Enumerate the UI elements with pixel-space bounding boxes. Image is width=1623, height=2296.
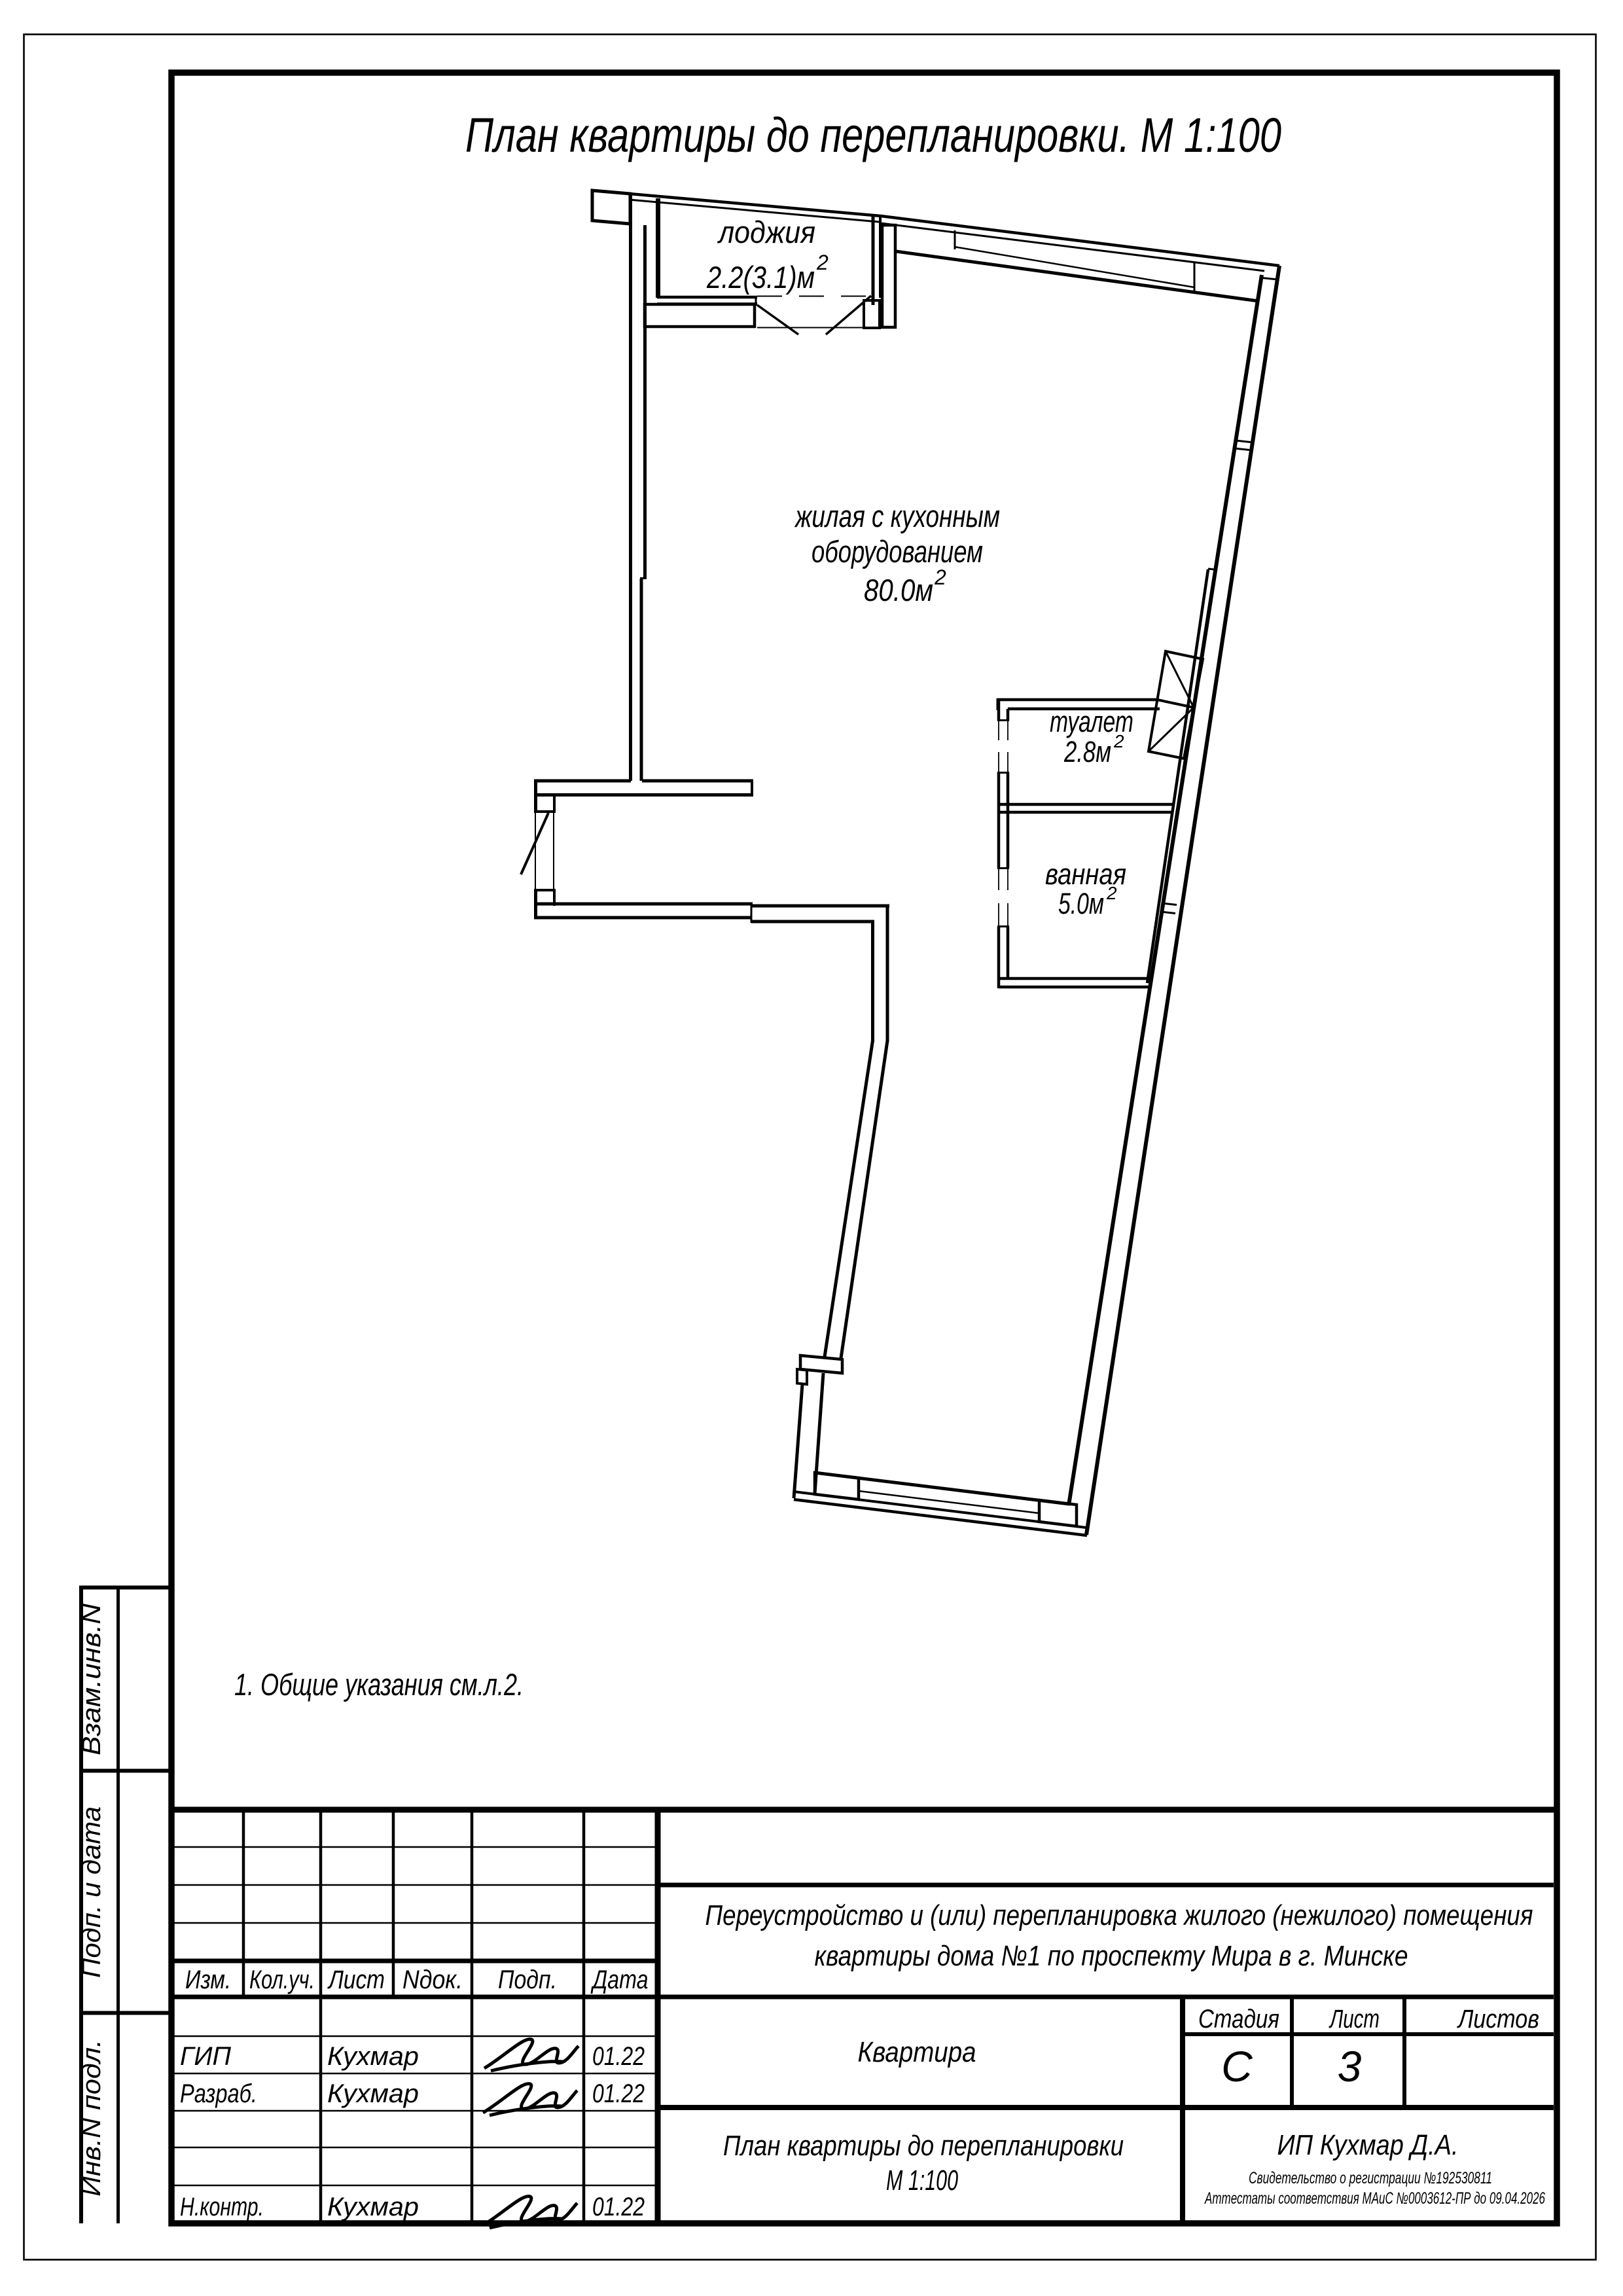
svg-text:Дата: Дата — [590, 1965, 648, 1994]
svg-text:Аттестаты соответствия МАиС №0: Аттестаты соответствия МАиС №0003612-ПР … — [1204, 2189, 1545, 2208]
svg-text:Лист: Лист — [1329, 2005, 1380, 2034]
svg-text:лоджия: лоджия — [717, 215, 815, 249]
svg-text:Кол.уч.: Кол.уч. — [249, 1965, 315, 1994]
svg-text:Н.контр.: Н.контр. — [180, 2193, 264, 2221]
svg-text:квартиры дома №1 по проспекту: квартиры дома №1 по проспекту Мира в г. … — [815, 1940, 1408, 1972]
svg-text:2.2(3.1)м: 2.2(3.1)м — [706, 260, 815, 295]
svg-text:Nдок.: Nдок. — [402, 1965, 463, 1994]
svg-text:Лист: Лист — [327, 1965, 385, 1994]
svg-text:80.0м: 80.0м — [864, 573, 933, 607]
svg-text:Листов: Листов — [1456, 2005, 1539, 2034]
svg-text:С: С — [1221, 2042, 1253, 2090]
svg-text:Кухмар: Кухмар — [327, 2193, 419, 2221]
svg-text:Разраб.: Разраб. — [180, 2079, 257, 2108]
svg-text:Свидетельство о регистрации №1: Свидетельство о регистрации №192530811 — [1249, 2169, 1492, 2187]
svg-text:ИП Кухмар Д.А.: ИП Кухмар Д.А. — [1277, 2129, 1459, 2161]
svg-text:5.0м: 5.0м — [1058, 887, 1104, 920]
svg-text:Переустройство и (или) перепла: Переустройство и (или) перепланировка жи… — [705, 1899, 1533, 1931]
svg-text:оборудованием: оборудованием — [811, 534, 983, 569]
svg-text:Инв.N подл.: Инв.N подл. — [77, 2039, 106, 2197]
svg-text:ГИП: ГИП — [180, 2042, 232, 2071]
svg-text:План квартиры до перепланировк: План квартиры до перепланировки. М 1:100 — [465, 108, 1281, 162]
svg-text:01.22: 01.22 — [592, 2079, 645, 2108]
svg-text:2: 2 — [816, 251, 829, 274]
svg-text:3: 3 — [1338, 2042, 1362, 2090]
svg-text:Взам.инв.N: Взам.инв.N — [77, 1604, 106, 1755]
svg-text:Кухмар: Кухмар — [327, 2079, 419, 2108]
svg-text:2: 2 — [934, 565, 946, 589]
svg-text:01.22: 01.22 — [592, 2042, 645, 2071]
svg-text:жилая с кухонным: жилая с кухонным — [794, 499, 1000, 533]
svg-text:2: 2 — [1113, 731, 1124, 751]
svg-text:Кухмар: Кухмар — [327, 2042, 419, 2071]
svg-text:Подп. и дата: Подп. и дата — [77, 1806, 106, 1978]
svg-text:М 1:100: М 1:100 — [886, 2164, 958, 2197]
svg-text:Квартира: Квартира — [858, 2036, 976, 2068]
svg-text:Изм.: Изм. — [185, 1965, 231, 1994]
svg-text:План квартиры до перепланировк: План квартиры до перепланировки — [723, 2130, 1124, 2162]
svg-text:Подп.: Подп. — [498, 1965, 557, 1994]
svg-text:2: 2 — [1106, 883, 1117, 903]
svg-text:1. Общие указания см.л.2.: 1. Общие указания см.л.2. — [234, 1667, 524, 1702]
svg-text:01.22: 01.22 — [592, 2193, 645, 2221]
svg-text:Стадия: Стадия — [1198, 2005, 1279, 2034]
svg-text:2.8м: 2.8м — [1063, 735, 1111, 768]
